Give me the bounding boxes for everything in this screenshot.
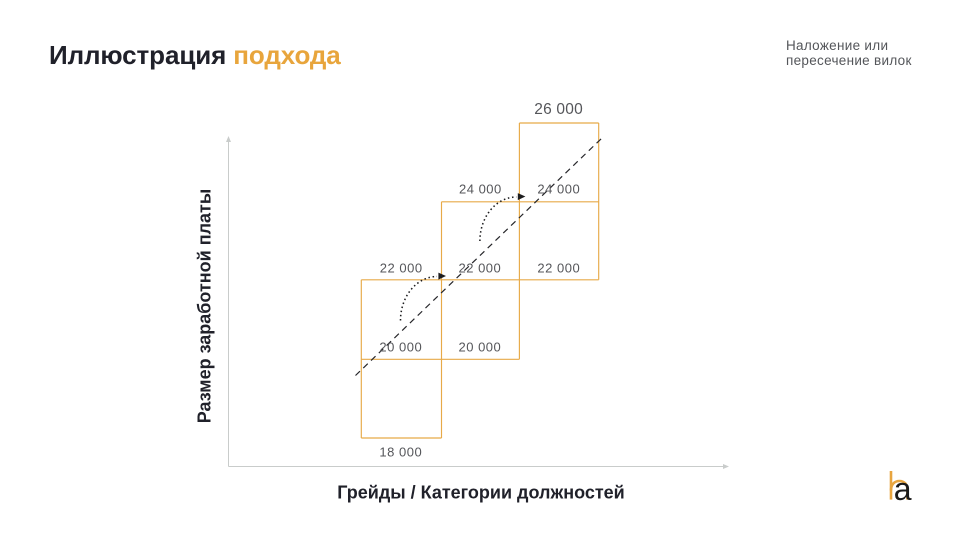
svg-text:a: a [894, 471, 912, 507]
